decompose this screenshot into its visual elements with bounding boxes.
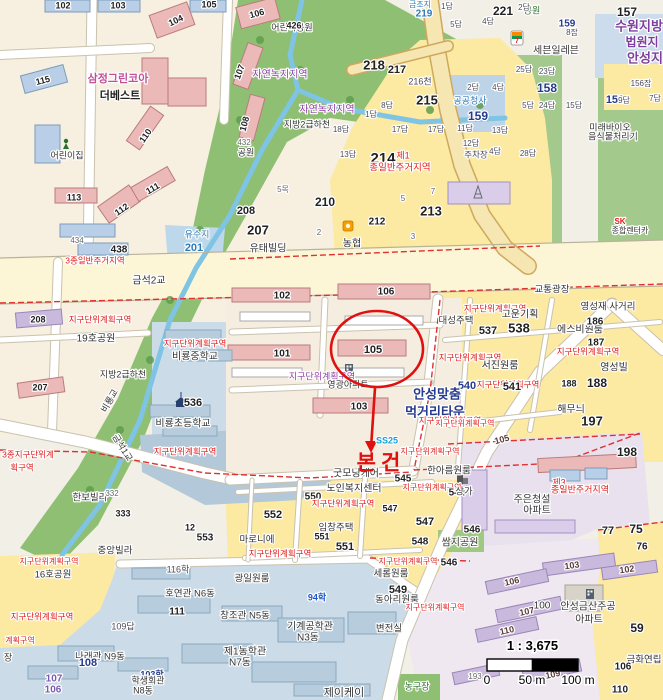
map-label: 4답 [489,146,501,156]
map-label: 고운기획 [502,309,539,321]
map-label: 더베스트 [100,88,140,102]
map-label: 3 [411,232,416,241]
street [224,0,228,120]
map-label: 안성지 [627,50,663,65]
map-label: 7 [431,187,436,196]
map-label: 17답 [428,124,445,134]
map-label: 4답 [492,82,504,92]
map-label: 23답 [539,66,556,76]
map-label: 음식물처리기 [588,130,638,141]
map-label: 546 [441,558,458,569]
map-label: 지구단위계획구역 [11,611,74,621]
map-label: 지구단위계획구역 [20,556,79,566]
map-label: 197 [581,413,603,428]
map-label: 7답 [649,93,661,103]
map-label: 세롬원룸 [374,569,409,580]
map-label: 지구단위계획구역 [154,446,217,456]
map-label: 종일반주거지역 [551,484,609,494]
map-label: 중앙빌라 [98,545,133,557]
map-label: 지방2급하천 [284,119,330,129]
map-label: 세븐일레븐 [533,45,579,57]
map-label: 110 [612,685,629,696]
map-label: N3동 [297,632,319,644]
building-icon [347,366,349,368]
map-label: 대성주택 [439,316,474,327]
map-label: 4답 [482,16,494,26]
map-label: 지구단위계획구역 [69,314,132,324]
map-label: 216천 [408,76,431,86]
map-label: 107 [46,674,63,685]
map-label: 5답 [450,19,462,29]
map-label: 103 [351,402,368,413]
map-label: 13답 [340,149,357,159]
map-label: 주은청설 [514,494,551,506]
map-label: 113 [67,192,82,202]
map-canvas[interactable]: 7102103105104106107108115110삼정그린코아더베스트어린… [0,0,663,700]
tree-icon [346,96,354,104]
building-icon [347,369,349,371]
map-label: 지구단위계획구역 [436,418,495,428]
map-label: 아파트 [523,505,551,517]
map-label: 553 [197,533,214,544]
map-label: 201 [185,242,203,254]
map-label: 536 [184,397,202,409]
map-label: 215 [416,92,438,107]
seven-icon: 7 [515,38,519,45]
map-label: 12 [185,522,195,532]
map-label: 207 [32,382,47,392]
map-label: 548 [412,537,429,548]
building [60,224,115,237]
map-label: 538 [508,320,530,335]
map-label: 제이케이 [324,686,364,699]
map-label: 변전실 [376,624,402,635]
seven-icon: 7 [511,31,523,45]
map-label: 서진원룸 [482,360,519,372]
building [448,182,510,204]
scale-tick-label: 100 m [561,673,594,687]
map-label: 547 [382,503,397,513]
map-label: 상가 [455,487,473,498]
map-label: 105 [201,0,216,9]
map-label: 59 [630,621,644,635]
map-label: 종일반주거지역 [369,163,430,174]
map-label: 546 [464,525,481,536]
bank-icon [343,221,353,231]
street [88,0,92,258]
map-label: 212 [369,217,386,228]
map-label: 안성금산주공 [560,601,615,613]
map-label: 551 [314,531,329,541]
map-label: 지구단위계획구역 [164,338,227,348]
map-label: SK [614,217,625,226]
map-label: 426 [286,20,301,30]
building-icon [588,594,590,596]
map-label: 한아름원룸 [427,466,471,477]
map-label: 쌈지공원 [442,537,479,549]
map-label: 5 [401,194,406,203]
map-label: 유수지 [185,229,210,239]
map-label: 광일원룸 [235,573,270,585]
map-label: N8동 [133,685,153,695]
map-label: 비룡초등학교 [155,418,210,430]
map-label: 1답 [441,1,453,11]
map-label: 금화연립 [627,654,662,666]
map-label: 18답 [333,124,350,134]
map-label: 159 [468,109,488,123]
map-label: 541 [503,381,521,393]
map-label: 8잡 [566,27,578,37]
map-label: 552 [264,509,282,521]
map-label: 2답 [467,82,479,92]
building-icon [588,591,590,593]
map-label: 158 [537,81,557,95]
map-label: 공공청사 [453,95,487,105]
map-label: 1답 [365,109,377,119]
map-label: 마로니에 [240,535,275,546]
map-label: 198 [617,445,637,459]
map-label: 영성재 사거리 [580,302,635,313]
map-label: 아파트 [575,614,603,626]
map-label: 농구장 [405,681,430,691]
map-label: 106 [45,685,62,696]
map-label: 102 [274,291,291,302]
map-label: 지구단위계획구역 [401,446,460,456]
store-icon [463,478,468,484]
person-icon [64,139,68,143]
building [240,312,310,321]
map-label: 16호공원 [35,570,72,581]
map-label: 210 [315,195,335,209]
scale-bar-black [533,659,579,671]
map-label: N7동 [229,657,251,669]
scale-ratio-label: 1 : 3,675 [507,638,558,653]
marker-code-label: SS25 [376,435,398,445]
tree-icon [256,36,264,44]
map-label: 학생회관 [131,675,164,685]
map-label: 218 [363,57,385,72]
building [252,662,336,682]
map-label: 5목 [277,185,289,194]
map-label: 농협 [343,237,361,250]
map-label: 94학 [308,591,327,602]
building [495,520,575,533]
map-label: 지방2급하천 [100,369,146,379]
map-label: 주차장 [464,149,488,159]
map-label: 551 [336,541,354,553]
map-label: 안성맞춤 [413,386,461,401]
map-label: 25답 [516,64,533,74]
map-label: 157 [617,5,637,19]
map-label: 한보빌라 [73,493,108,504]
map-label: 188 [587,376,607,390]
map-label: 103 [110,0,125,10]
map-label: 24답 [539,100,556,110]
map-label: 108 [79,657,97,669]
map-label: 12답 [463,138,480,148]
map-label: 186 [587,317,604,328]
building [232,288,310,302]
map-label: 103 [564,559,580,571]
map-label: 207 [247,222,269,237]
map-label: 208 [30,314,45,324]
map-label: 333 [115,508,130,518]
map-label: 삼정그린코아 [88,71,150,85]
scale-tick-label: 0 [484,673,491,687]
map-label: 9답 [618,95,630,105]
scale-tick-label: 50 m [519,673,546,687]
map-label: 지구단위계획구역 [249,548,312,558]
map-label: 2 [317,228,322,237]
map-label: 획구역 [10,462,33,472]
map-label: 102 [619,563,635,575]
map-label: 100 [534,601,551,612]
map-label: 106 [378,287,395,298]
scale-bar-white [487,659,533,671]
map-label: 공원 [238,147,255,157]
bldg-icon [586,589,594,599]
map-label: 지구단위계획구역 [379,556,438,566]
map-label: 15답 [566,100,583,110]
map-label: 105 [364,344,382,356]
map-label: 제1농학관 [224,646,266,658]
map-label: 어린이집 [50,149,83,160]
map-label: 208 [237,205,255,217]
map-label: 영성빌 [600,362,628,374]
map-label: 116학 [167,564,190,574]
subject-label: 본건 [357,452,406,475]
map-label: 221 [493,4,513,18]
building [168,78,206,106]
map-label: 5답 [522,100,534,110]
map-label: 76 [636,542,648,553]
map-label: 75 [629,522,643,536]
seven-icon [512,32,522,36]
bank-icon [346,224,350,228]
map-label: 434 [70,236,84,245]
map-label: 계획구역 [5,635,34,645]
map-label: 수원지방 [615,18,663,33]
map-label: 호연관 N6동 [165,589,215,600]
map-label: 자연녹지지역 [252,69,307,81]
map-label: 438 [111,245,128,256]
map-label: 창조관 N5동 [220,611,270,622]
map-label: 8답 [381,100,393,110]
map-label: 노인복지센터 [326,483,381,495]
map-label: 13답 [492,125,509,135]
map-label: 3종지구단위계 [2,449,54,459]
map-label: 종합렌터카 [612,225,649,235]
map-label: 106 [615,662,632,673]
map-label: 비룡중학교 [172,351,218,363]
map-label: 장 [4,652,12,662]
building [228,345,310,360]
map-label: 156잡 [631,78,652,88]
map-label: 지구단위계획구역 [406,602,465,612]
map-label: 지구단위계획구역 [312,498,375,508]
map-label: 77 [602,525,614,537]
map-label: 109답 [111,620,134,631]
map-label: 219 [416,9,433,20]
building [585,468,607,479]
tree-icon [146,356,154,364]
map-label: 2답 [518,2,530,12]
map-label: 28답 [520,148,537,158]
building-icon [586,589,594,599]
map-label: 217 [388,64,406,76]
map-label: 213 [420,203,442,218]
map-label: 547 [416,516,434,528]
map-label: 19호공원 [77,333,116,345]
map-label: 537 [479,325,497,337]
map-label: 193 [468,672,482,681]
map-label: 금석2교 [132,275,165,287]
building-icon [591,591,593,593]
map-label: 지구단위계획구역 [557,346,620,356]
map-label: 17답 [392,124,409,134]
map-label: 332 [105,489,119,498]
map-label: 3종일반주거지역 [65,255,124,265]
map-label: 자연녹지지역 [299,104,354,116]
map-label: 432 [237,138,251,147]
map-label: 기계공학관 [287,621,333,633]
map-label: 교통광장 [535,284,570,296]
map-label: 제1 [396,150,409,160]
map-viewport[interactable]: 7102103105104106107108115110삼정그린코아더베스트어린… [0,0,663,700]
map-label: 102 [55,0,70,10]
map-label: 101 [274,349,291,360]
map-label: 유태빌딩 [250,243,287,255]
building-icon [350,366,352,368]
map-label: 111 [169,607,185,618]
map-label: 법원지 [625,34,658,49]
map-label: 188 [561,378,576,388]
map-label: 11답 [457,123,473,133]
